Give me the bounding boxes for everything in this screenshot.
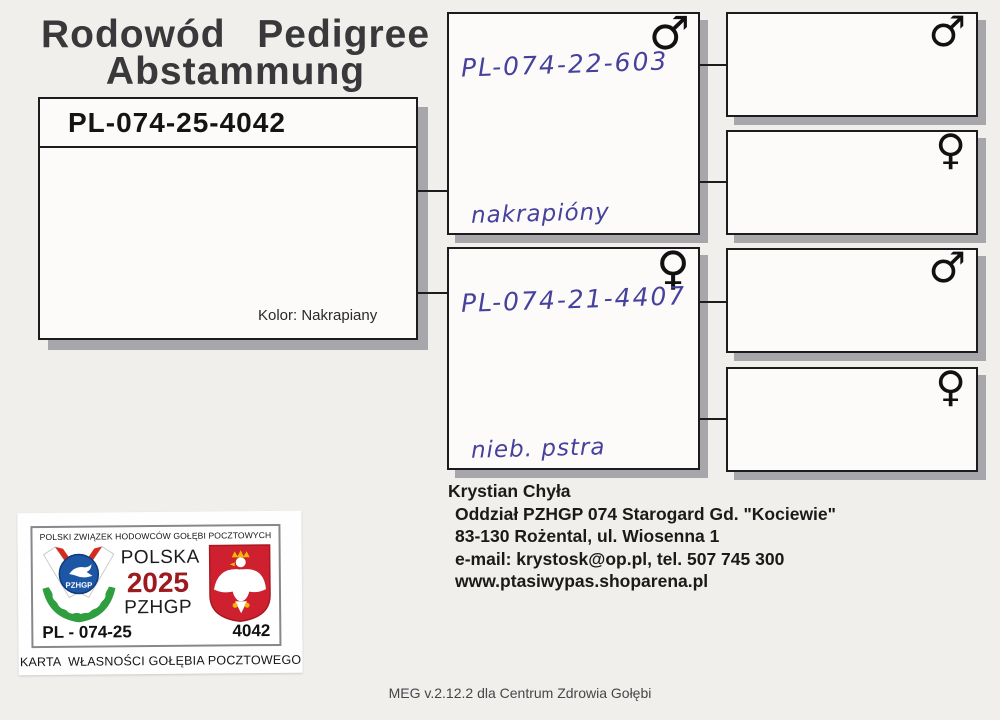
card-center-text: POLSKA 2025 PZHGP — [121, 547, 196, 620]
title-line-1: Rodowód Pedigree — [28, 16, 443, 53]
father-ring-number: PL-074-22-603 — [461, 46, 669, 82]
pedigree-document: Rodowód Pedigree Abstammung PL-074-25-40… — [0, 0, 1000, 720]
ownership-card-frame: POLSKI ZWIĄZEK HODOWCÓW GOŁĘBI POCZTOWYC… — [30, 524, 281, 648]
connector-father-grandsire — [700, 64, 726, 66]
connector-mother-grandsire — [700, 301, 726, 303]
grandmother-paternal-box: ♀ — [726, 130, 978, 235]
ring-prefix: PL - 074-25 — [42, 622, 132, 643]
breeder-info: Krystian Chyła Oddział PZHGP 074 Staroga… — [448, 480, 836, 593]
breeder-contact: e-mail: krystosk@op.pl, tel. 507 745 300 — [455, 548, 836, 571]
mother-box: ♀ PL-074-21-4407 nieb. pstra — [447, 247, 700, 470]
connector-mother-granddam — [700, 418, 726, 420]
connector-bird-father — [416, 190, 447, 192]
male-symbol-icon: ♂ — [928, 9, 966, 55]
bird-box: PL-074-25-4042 Kolor: Nakrapiany — [38, 97, 418, 340]
breeder-name: Krystian Chyła — [448, 480, 836, 503]
org-label: PZHGP — [121, 597, 195, 620]
female-symbol-icon: ♀ — [935, 127, 966, 173]
software-credit: MEG v.2.12.2 dla Centrum Zdrowia Gołębi — [340, 685, 700, 701]
breeder-website: www.ptasiwypas.shoparena.pl — [455, 570, 836, 593]
pzhgp-logo-text: PZHGP — [65, 581, 92, 590]
connector-father-granddam — [700, 181, 726, 183]
grandfather-maternal-box: ♂ — [726, 248, 978, 353]
bird-ring-number: PL-074-25-4042 — [40, 99, 416, 148]
title-line-2: Abstammung — [28, 53, 443, 90]
year-label: 2025 — [121, 569, 195, 598]
ring-number: 4042 — [232, 621, 270, 641]
card-ring-row: PL - 074-25 4042 — [42, 621, 270, 643]
card-title: KARTA WŁASNOŚCI GOŁĘBIA POCZTOWEGO — [19, 653, 303, 669]
polish-eagle-emblem-icon — [208, 543, 273, 624]
mother-ring-number: PL-074-21-4407 — [461, 281, 687, 318]
male-symbol-icon: ♂ — [928, 245, 966, 291]
ownership-card: POLSKI ZWIĄZEK HODOWCÓW GOŁĘBI POCZTOWYC… — [17, 511, 302, 675]
female-symbol-icon: ♀ — [935, 364, 966, 410]
father-box: ♂ PL-074-22-603 nakrapióny — [447, 12, 700, 235]
grandfather-paternal-box: ♂ — [726, 12, 978, 117]
pzhgp-logo-icon: PZHGP — [40, 544, 119, 627]
mother-color-note: nieb. pstra — [471, 434, 606, 464]
father-color-note: nakrapióny — [471, 199, 610, 229]
connector-bird-mother — [416, 292, 447, 294]
breeder-address: 83-130 Rożental, ul. Wiosenna 1 — [455, 525, 836, 548]
bird-color-label: Kolor: Nakrapiany — [258, 307, 377, 324]
federation-name: POLSKI ZWIĄZEK HODOWCÓW GOŁĘBI POCZTOWYC… — [32, 530, 278, 542]
document-title: Rodowód Pedigree Abstammung — [28, 16, 443, 90]
breeder-club: Oddział PZHGP 074 Starogard Gd. "Kociewi… — [455, 503, 836, 526]
grandmother-maternal-box: ♀ — [726, 367, 978, 472]
